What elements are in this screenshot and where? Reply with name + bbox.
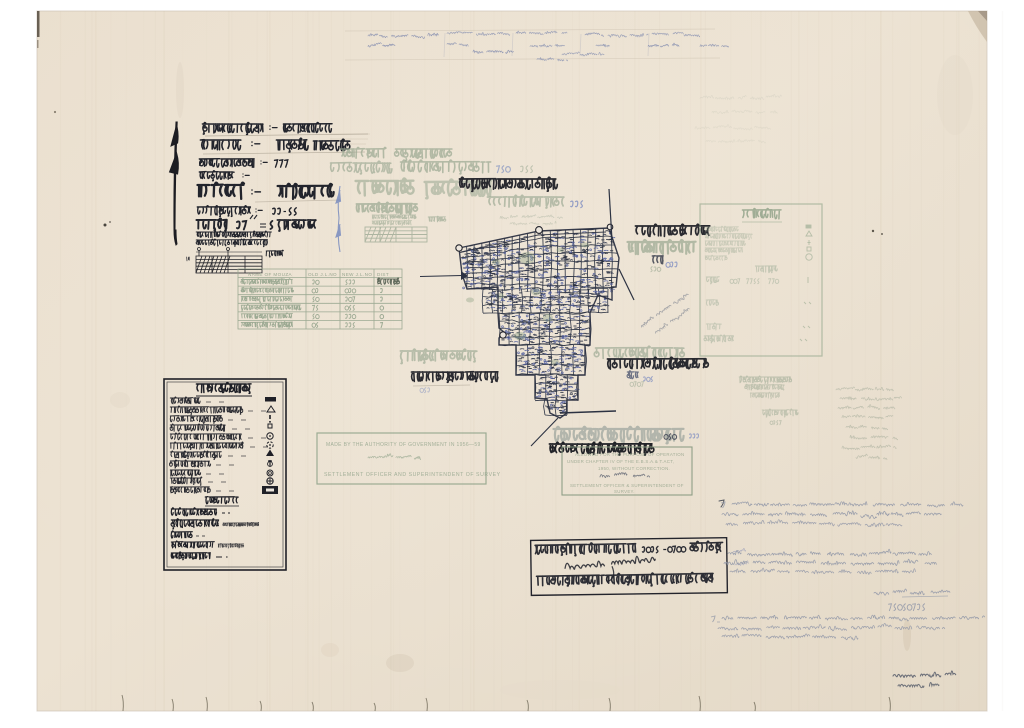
svg-text:OLD J.L.NO: OLD J.L.NO: [308, 272, 337, 277]
svg-text:NAME OF MOUZA: NAME OF MOUZA: [248, 272, 293, 277]
svg-text:1950, WITHOUT CORRECTION.: 1950, WITHOUT CORRECTION.: [598, 466, 670, 471]
svg-text:NEW J.L.NO: NEW J.L.NO: [342, 272, 372, 277]
svg-text:MADE BY THE AUTHORITY OF GOVER: MADE BY THE AUTHORITY OF GOVERNMENT IN 1…: [326, 442, 481, 448]
svg-text:ALLOWED FOR THE PURPOSE OF OPE: ALLOWED FOR THE PURPOSE OF OPERATION: [575, 452, 684, 457]
svg-text:DIST: DIST: [377, 272, 389, 277]
svg-text:SETTLEMENT OFFICER AND SUPERI: SETTLEMENT OFFICER AND SUPERINTENDENT OF…: [324, 472, 501, 478]
svg-text:UNDER CHAPTER IV OF THE E.B.S.: UNDER CHAPTER IV OF THE E.B.S.A.& T.ACT,: [567, 459, 674, 464]
svg-text:SETTLEMENT OFFICER & SUPERINTE: SETTLEMENT OFFICER & SUPERINTENDENT OF: [570, 483, 684, 488]
svg-text:SURVEY.: SURVEY.: [614, 489, 635, 494]
